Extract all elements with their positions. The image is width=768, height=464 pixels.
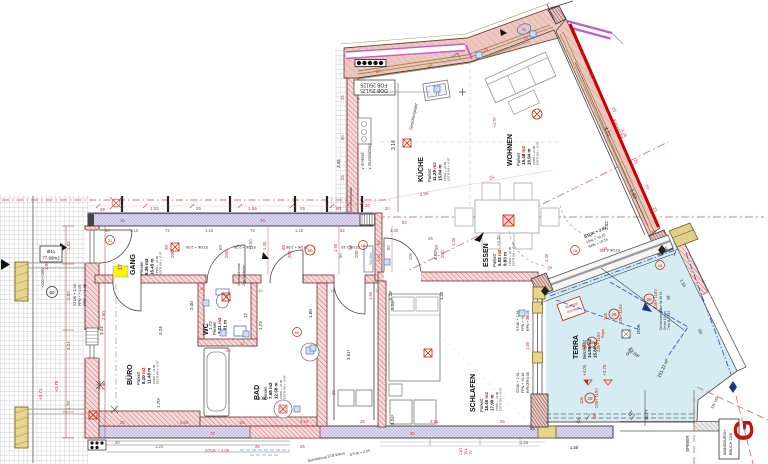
svg-text:+3.70: +3.70 bbox=[602, 364, 607, 376]
svg-text:25: 25 bbox=[196, 206, 202, 211]
svg-text:STÜK + 2.05: STÜK + 2.05 bbox=[186, 245, 208, 249]
svg-text:3.51: 3.51 bbox=[430, 419, 439, 424]
svg-text:STUK + 2.81: STUK + 2.81 bbox=[516, 372, 520, 393]
svg-text:1.72: 1.72 bbox=[258, 321, 263, 330]
svg-text:21: 21 bbox=[108, 238, 113, 243]
svg-text:20: 20 bbox=[331, 390, 336, 395]
svg-text:11.29 m2: 11.29 m2 bbox=[432, 162, 437, 181]
svg-text:∨ E-Herd: ∨ E-Herd bbox=[360, 152, 365, 170]
svg-text:235+ 115V: 235+ 115V bbox=[618, 304, 623, 324]
svg-text:DK: DK bbox=[592, 413, 597, 419]
svg-text:200: 200 bbox=[354, 250, 359, 258]
svg-text:19: 19 bbox=[658, 263, 663, 268]
svg-text:25: 25 bbox=[500, 419, 505, 424]
svg-text:25: 25 bbox=[300, 444, 305, 449]
svg-text:90: 90 bbox=[226, 348, 231, 353]
svg-text:1.30: 1.30 bbox=[451, 237, 456, 246]
svg-text:3.24: 3.24 bbox=[300, 419, 309, 424]
svg-text:2.02: 2.02 bbox=[66, 291, 71, 300]
svg-text:Trk.Vert: Trk.Vert bbox=[369, 253, 373, 265]
svg-text:ESTR OK + -0.07: ESTR OK + -0.07 bbox=[447, 157, 451, 181]
svg-text:72: 72 bbox=[165, 228, 170, 233]
svg-text:ESTR OK + -0.07: ESTR OK + -0.07 bbox=[159, 251, 163, 275]
svg-text:235+ 115V: 235+ 115V bbox=[653, 289, 658, 309]
svg-text:KÜCHE: KÜCHE bbox=[416, 157, 425, 182]
svg-text:5.24¹: 5.24¹ bbox=[388, 290, 393, 300]
svg-text:50: 50 bbox=[307, 248, 313, 253]
svg-text:ESTR OK + -0.07: ESTR OK + -0.07 bbox=[156, 360, 160, 384]
svg-text:1.15: 1.15 bbox=[130, 228, 139, 233]
svg-text:17: 17 bbox=[240, 341, 245, 346]
svg-text:STÜK + 2.05: STÜK + 2.05 bbox=[286, 245, 308, 249]
svg-text:3.51²: 3.51² bbox=[346, 349, 351, 360]
svg-text:10: 10 bbox=[105, 228, 110, 233]
svg-text:∨ Dunstabzug: ∨ Dunstabzug bbox=[367, 143, 372, 170]
svg-text:100: 100 bbox=[579, 396, 584, 404]
svg-text:1.90: 1.90 bbox=[525, 341, 530, 350]
svg-text:11.48 m: 11.48 m bbox=[147, 368, 152, 384]
svg-text:1.90: 1.90 bbox=[368, 291, 373, 300]
svg-text:62: 62 bbox=[376, 240, 381, 245]
svg-text:3.24: 3.24 bbox=[66, 341, 71, 350]
svg-text:1.02: 1.02 bbox=[604, 221, 609, 230]
svg-text:G: G bbox=[728, 419, 759, 441]
svg-text:Regel: Regel bbox=[601, 329, 605, 338]
svg-text:STUK + 2.40: STUK + 2.40 bbox=[73, 284, 77, 306]
svg-text:60: 60 bbox=[49, 290, 55, 295]
svg-text:106: 106 bbox=[603, 312, 608, 320]
svg-text:1.15: 1.15 bbox=[295, 228, 304, 233]
svg-text:1.15: 1.15 bbox=[205, 228, 214, 233]
svg-text:CAT: CAT bbox=[459, 447, 463, 455]
svg-text:TEL: TEL bbox=[464, 448, 468, 455]
svg-text:90: 90 bbox=[340, 135, 345, 140]
svg-text:90: 90 bbox=[164, 244, 169, 250]
svg-text:18.40 m2: 18.40 m2 bbox=[484, 391, 489, 411]
svg-text:ESTR OK + -0.07: ESTR OK + -0.07 bbox=[536, 141, 540, 165]
svg-text:8.10 m2: 8.10 m2 bbox=[141, 367, 146, 384]
svg-text:Ø11: Ø11 bbox=[47, 249, 56, 254]
svg-text:SPEIER: SPEIER bbox=[685, 435, 690, 452]
svg-text:1.02: 1.02 bbox=[376, 253, 381, 262]
svg-text:FPN + +1.05: FPN + +1.05 bbox=[78, 284, 82, 306]
svg-text:200: 200 bbox=[287, 250, 292, 258]
svg-text:62: 62 bbox=[402, 220, 407, 225]
svg-text:+3.60: +3.60 bbox=[248, 239, 253, 250]
svg-text:15: 15 bbox=[361, 243, 366, 248]
svg-text:12: 12 bbox=[375, 288, 380, 293]
svg-text:3.24: 3.24 bbox=[99, 326, 104, 335]
svg-text:12: 12 bbox=[330, 288, 335, 293]
svg-text:1.02: 1.02 bbox=[150, 206, 159, 211]
svg-text:Treib B 10/13: Treib B 10/13 bbox=[667, 311, 671, 330]
svg-text:25: 25 bbox=[340, 175, 345, 180]
svg-text:FOB 25/125: FOB 25/125 bbox=[360, 82, 387, 88]
svg-text:2eb. Verteiler: 2eb. Verteiler bbox=[242, 264, 246, 286]
svg-text:3.34: 3.34 bbox=[336, 159, 341, 168]
svg-text:17: 17 bbox=[243, 312, 248, 318]
svg-text:235+ 115V: 235+ 115V bbox=[594, 388, 599, 408]
svg-text:25: 25 bbox=[260, 218, 265, 223]
svg-text:77.99m2: 77.99m2 bbox=[42, 256, 60, 261]
svg-text:17.90 m: 17.90 m bbox=[490, 394, 495, 411]
svg-text:25: 25 bbox=[340, 95, 345, 100]
svg-text:9.83 m: 9.83 m bbox=[503, 252, 508, 266]
svg-text:80: 80 bbox=[218, 244, 223, 250]
svg-text:6.02 m2: 6.02 m2 bbox=[497, 249, 502, 266]
svg-text:5.36 m2: 5.36 m2 bbox=[144, 258, 149, 275]
svg-text:90: 90 bbox=[336, 206, 342, 211]
svg-text:15.04 m: 15.04 m bbox=[438, 164, 443, 181]
svg-text:29: 29 bbox=[587, 396, 593, 401]
svg-text:65: 65 bbox=[295, 330, 300, 335]
svg-text:1.72: 1.72 bbox=[208, 321, 213, 330]
svg-text:1.30: 1.30 bbox=[439, 291, 444, 300]
svg-text:+3.70: +3.70 bbox=[54, 380, 59, 392]
svg-text:1.90: 1.90 bbox=[333, 243, 338, 252]
svg-text:ESTR OK + -0.07: ESTR OK + -0.07 bbox=[512, 242, 516, 266]
svg-text:2.50: 2.50 bbox=[180, 420, 189, 425]
svg-text:TV: TV bbox=[469, 450, 473, 455]
svg-text:200: 200 bbox=[440, 250, 445, 258]
svg-text:72: 72 bbox=[210, 431, 215, 436]
svg-text:TERRA: TERRA bbox=[573, 335, 580, 359]
svg-text:16.45 m: 16.45 m bbox=[150, 258, 155, 275]
svg-text:15: 15 bbox=[120, 218, 125, 223]
svg-text:25: 25 bbox=[428, 236, 433, 241]
svg-text:72: 72 bbox=[250, 228, 255, 233]
svg-text:ESSEN: ESSEN bbox=[483, 243, 490, 267]
svg-text:25: 25 bbox=[300, 206, 306, 211]
svg-text:25: 25 bbox=[525, 315, 530, 320]
svg-text:17: 17 bbox=[118, 264, 124, 270]
svg-text:+3.71: +3.71 bbox=[38, 388, 43, 400]
svg-text:16.04 m: 16.04 m bbox=[527, 148, 532, 165]
svg-text:3.24¹: 3.24¹ bbox=[390, 414, 395, 425]
svg-text:1.60: 1.60 bbox=[308, 309, 313, 318]
svg-text:25: 25 bbox=[530, 426, 535, 431]
svg-text:90: 90 bbox=[434, 244, 439, 250]
svg-text:15.48 m2: 15.48 m2 bbox=[521, 145, 526, 165]
svg-text:1.70: 1.70 bbox=[66, 401, 71, 410]
svg-text:WANDDURCH: WANDDURCH bbox=[723, 430, 727, 455]
svg-text:+4.05: +4.05 bbox=[582, 364, 587, 376]
svg-text:25: 25 bbox=[360, 419, 365, 424]
svg-text:3.24: 3.24 bbox=[158, 326, 163, 335]
svg-text:200: 200 bbox=[224, 250, 229, 258]
svg-text:20: 20 bbox=[365, 203, 371, 208]
svg-text:25: 25 bbox=[410, 431, 415, 436]
svg-text:BÜRO: BÜRO bbox=[125, 364, 134, 385]
svg-text:Vorwandinstal.: Vorwandinstal. bbox=[237, 263, 241, 286]
svg-text:RPN + +1.05: RPN + +1.05 bbox=[83, 284, 87, 306]
svg-text:2.86¹: 2.86¹ bbox=[258, 396, 269, 401]
svg-text:1.55: 1.55 bbox=[570, 445, 579, 450]
svg-text:29: 29 bbox=[589, 340, 595, 345]
svg-text:65: 65 bbox=[522, 27, 527, 32]
svg-text:1.02: 1.02 bbox=[390, 228, 399, 233]
svg-text:25: 25 bbox=[525, 380, 530, 385]
svg-text:25: 25 bbox=[255, 444, 260, 449]
svg-text:+3.30: +3.30 bbox=[496, 235, 501, 246]
svg-text:7.68 m2: 7.68 m2 bbox=[268, 382, 273, 399]
svg-text:GANG: GANG bbox=[130, 253, 137, 275]
svg-text:25: 25 bbox=[100, 207, 106, 212]
svg-text:20: 20 bbox=[115, 440, 120, 445]
svg-text:1.02: 1.02 bbox=[44, 261, 49, 270]
svg-text:ESTR OK + -0.06: ESTR OK + -0.06 bbox=[283, 375, 287, 399]
svg-text:WOHNEN: WOHNEN bbox=[507, 134, 514, 166]
svg-text:80: 80 bbox=[386, 245, 391, 250]
svg-text:4.52¹: 4.52¹ bbox=[433, 249, 438, 260]
svg-text:200: 200 bbox=[408, 252, 413, 260]
svg-text:1.02: 1.02 bbox=[66, 241, 71, 250]
svg-text:1.21: 1.21 bbox=[155, 444, 164, 449]
svg-text:+3.70: +3.70 bbox=[492, 117, 497, 128]
svg-text:62: 62 bbox=[340, 228, 345, 233]
svg-text:28: 28 bbox=[611, 312, 617, 317]
svg-text:STUK + 2.05: STUK + 2.05 bbox=[205, 448, 230, 453]
svg-text:18: 18 bbox=[573, 248, 578, 253]
svg-text:1.25: 1.25 bbox=[520, 440, 529, 445]
svg-text:137: 137 bbox=[581, 342, 586, 350]
svg-text:25: 25 bbox=[240, 420, 245, 425]
svg-text:45: 45 bbox=[200, 286, 205, 291]
svg-text:Kunststoffplatte: Kunststoffplatte bbox=[349, 187, 353, 212]
svg-text:2.40: 2.40 bbox=[189, 301, 194, 310]
svg-text:3.14: 3.14 bbox=[391, 140, 397, 150]
svg-text:12: 12 bbox=[258, 288, 263, 293]
svg-text:2.56: 2.56 bbox=[248, 206, 257, 211]
svg-text:28: 28 bbox=[646, 297, 652, 302]
svg-text:25: 25 bbox=[120, 420, 125, 425]
svg-text:ESTR OK + -0.07: ESTR OK + -0.07 bbox=[499, 387, 503, 411]
svg-text:1.30: 1.30 bbox=[544, 253, 549, 262]
svg-text:80: 80 bbox=[281, 244, 286, 250]
svg-text:1.70¹: 1.70¹ bbox=[156, 397, 161, 408]
svg-text:1.30: 1.30 bbox=[262, 241, 267, 250]
svg-text:12.58 m: 12.58 m bbox=[274, 382, 279, 399]
svg-text:90: 90 bbox=[348, 244, 353, 250]
svg-text:SCHLAFEN: SCHLAFEN bbox=[470, 374, 477, 412]
